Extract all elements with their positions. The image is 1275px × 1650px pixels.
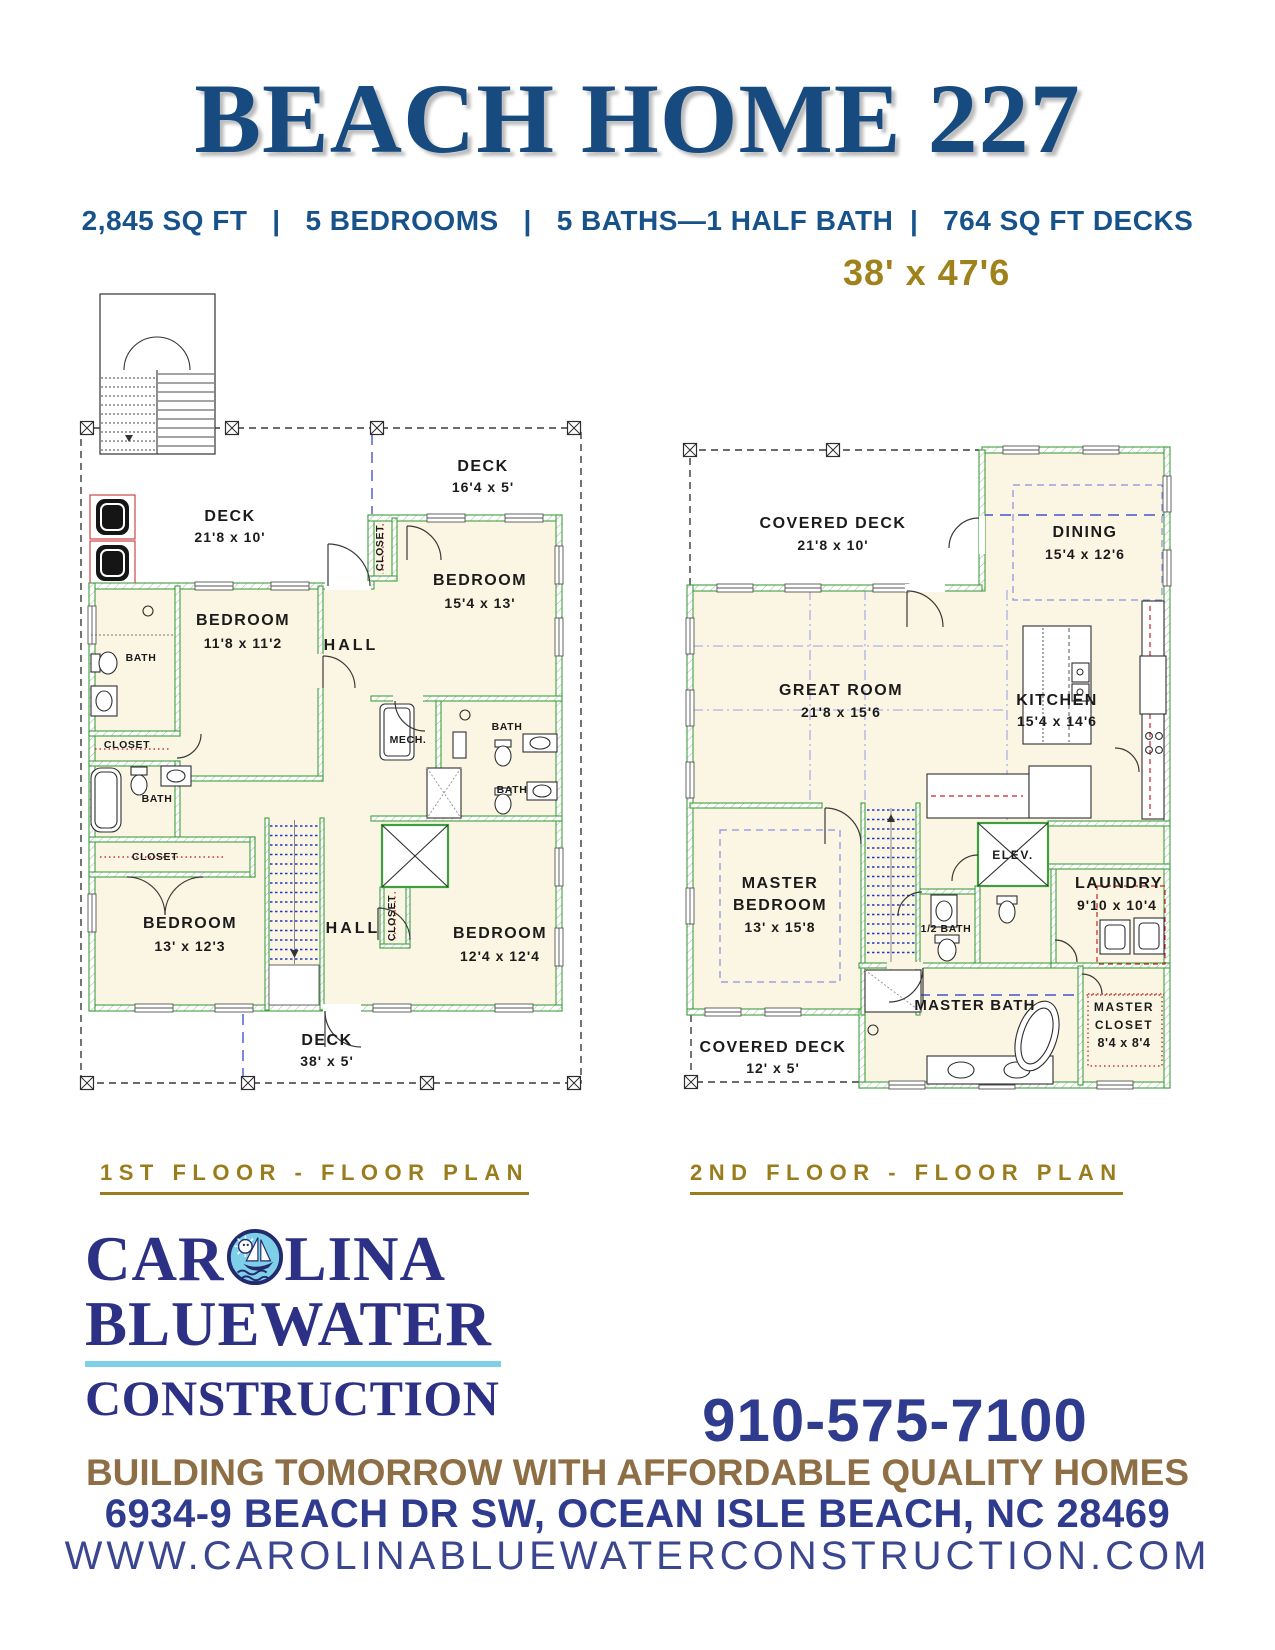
deck-post-icon [81, 422, 94, 435]
room-label: COVERED DECK [760, 515, 907, 532]
room-size: 21'8 x 10' [797, 537, 868, 553]
room-label: MECH. [390, 734, 427, 746]
street-address: 6934-9 BEACH DR SW, OCEAN ISLE BEACH, NC… [0, 1492, 1275, 1537]
exterior-stairs [100, 294, 215, 454]
logo-text: CAR [85, 1224, 225, 1294]
deck-post-icon [685, 1076, 698, 1089]
room-label: BATH [126, 652, 157, 664]
room-label: LAUNDRY [1075, 875, 1163, 892]
room-label: COVERED DECK [700, 1039, 847, 1056]
room-size: 8'4 x 8'4 [1097, 1036, 1150, 1050]
room-label: BEDROOM [433, 572, 527, 589]
room-label: CLOSET [132, 851, 178, 863]
room-label: CLOSET [386, 895, 398, 941]
room-size: 11'8 x 11'2 [204, 635, 282, 651]
logo-line1: CAR LINA [85, 1228, 505, 1291]
tagline: BUILDING TOMORROW WITH AFFORDABLE QUALIT… [0, 1452, 1275, 1494]
room-label: DECK [204, 508, 255, 525]
deck-post-icon [371, 422, 384, 435]
room-label: 1/2 BATH [921, 923, 972, 935]
deck-post-icon [242, 1077, 255, 1090]
flyer-page: BEACH HOME 227 2,845 SQ FT | 5 BEDROOMS … [0, 0, 1275, 1650]
logo-line3: CONSTRUCTION [85, 1373, 505, 1423]
room-label: BATH [497, 784, 528, 796]
room-size: 15'4 x 12'6 [1045, 546, 1125, 562]
room-size: 16'4 x 5' [452, 479, 514, 495]
deck-post-icon [827, 444, 840, 457]
room-label: ELEV. [992, 848, 1034, 862]
page-title: BEACH HOME 227 [0, 66, 1275, 171]
logo-divider [85, 1361, 501, 1367]
deck-post-icon [81, 1077, 94, 1090]
room-size: 12'4 x 12'4 [460, 948, 540, 964]
sailboat-sun-badge-icon [226, 1228, 284, 1286]
room-label: DECK [457, 458, 508, 475]
deck-post-icon [568, 1077, 581, 1090]
room-label: CLOSET [104, 739, 150, 751]
room-size: 12' x 5' [746, 1060, 800, 1076]
logo-line2: BLUEWATER [85, 1293, 505, 1356]
room-label: BEDROOM [733, 897, 827, 914]
room-label: BEDROOM [453, 925, 547, 942]
room-size: 9'10 x 10'4 [1077, 897, 1157, 913]
deck-post-icon [568, 422, 581, 435]
deck-post-icon [226, 422, 239, 435]
room-label: CLOSET [1095, 1018, 1153, 1032]
room-size: 13' x 12'3 [154, 938, 225, 954]
room-size: 21'8 x 15'6 [801, 704, 881, 720]
deck-post-icon [421, 1077, 434, 1090]
room-label: HALL [326, 920, 381, 937]
room-label: CLOSET [374, 525, 386, 571]
room-size: 15'4 x 13' [444, 595, 515, 611]
room-label: HALL [324, 637, 379, 654]
room-label: BATH [492, 721, 523, 733]
website-url: WWW.CAROLINABLUEWATERCONSTRUCTION.COM [0, 1534, 1275, 1579]
room-size: 38' x 5' [300, 1053, 354, 1069]
room-label: KITCHEN [1016, 692, 1098, 709]
logo-text: LINA [285, 1224, 447, 1294]
room-size: 21'8 x 10' [194, 529, 265, 545]
phone-number: 910-575-7100 [615, 1386, 1175, 1455]
elevator-shaft [382, 825, 448, 887]
deck-post-icon [684, 444, 697, 457]
specs-line: 2,845 SQ FT | 5 BEDROOMS | 5 BATHS—1 HAL… [0, 205, 1275, 237]
room-label: DINING [1053, 524, 1118, 541]
room-label: MASTER [742, 875, 819, 892]
room-label: BATH [142, 793, 173, 805]
room-label: DECK [301, 1032, 352, 1049]
overall-dimensions: 38' x 47'6 [843, 252, 1010, 294]
room-label: MASTER [1094, 1000, 1154, 1014]
company-logo: CAR LINA BLUEWATER CONSTRUCTION [85, 1228, 505, 1423]
first-floor-caption: 1ST FLOOR - FLOOR PLAN [100, 1160, 529, 1195]
room-label: BEDROOM [143, 915, 237, 932]
room-label: BEDROOM [196, 612, 290, 629]
room-size: 13' x 15'8 [744, 919, 815, 935]
first-floor-plan: DECK 21'8 x 10' DECK 16'4 x 5' CLOSET BE… [75, 288, 595, 1098]
room-size: 15'4 x 14'6 [1017, 713, 1097, 729]
second-floor-plan: COVERED DECK 21'8 x 10' DINING 15'4 x 12… [645, 418, 1180, 1093]
room-label: GREAT ROOM [779, 682, 903, 699]
room-label: MASTER BATH [914, 997, 1035, 1014]
second-floor-caption: 2ND FLOOR - FLOOR PLAN [690, 1160, 1123, 1195]
